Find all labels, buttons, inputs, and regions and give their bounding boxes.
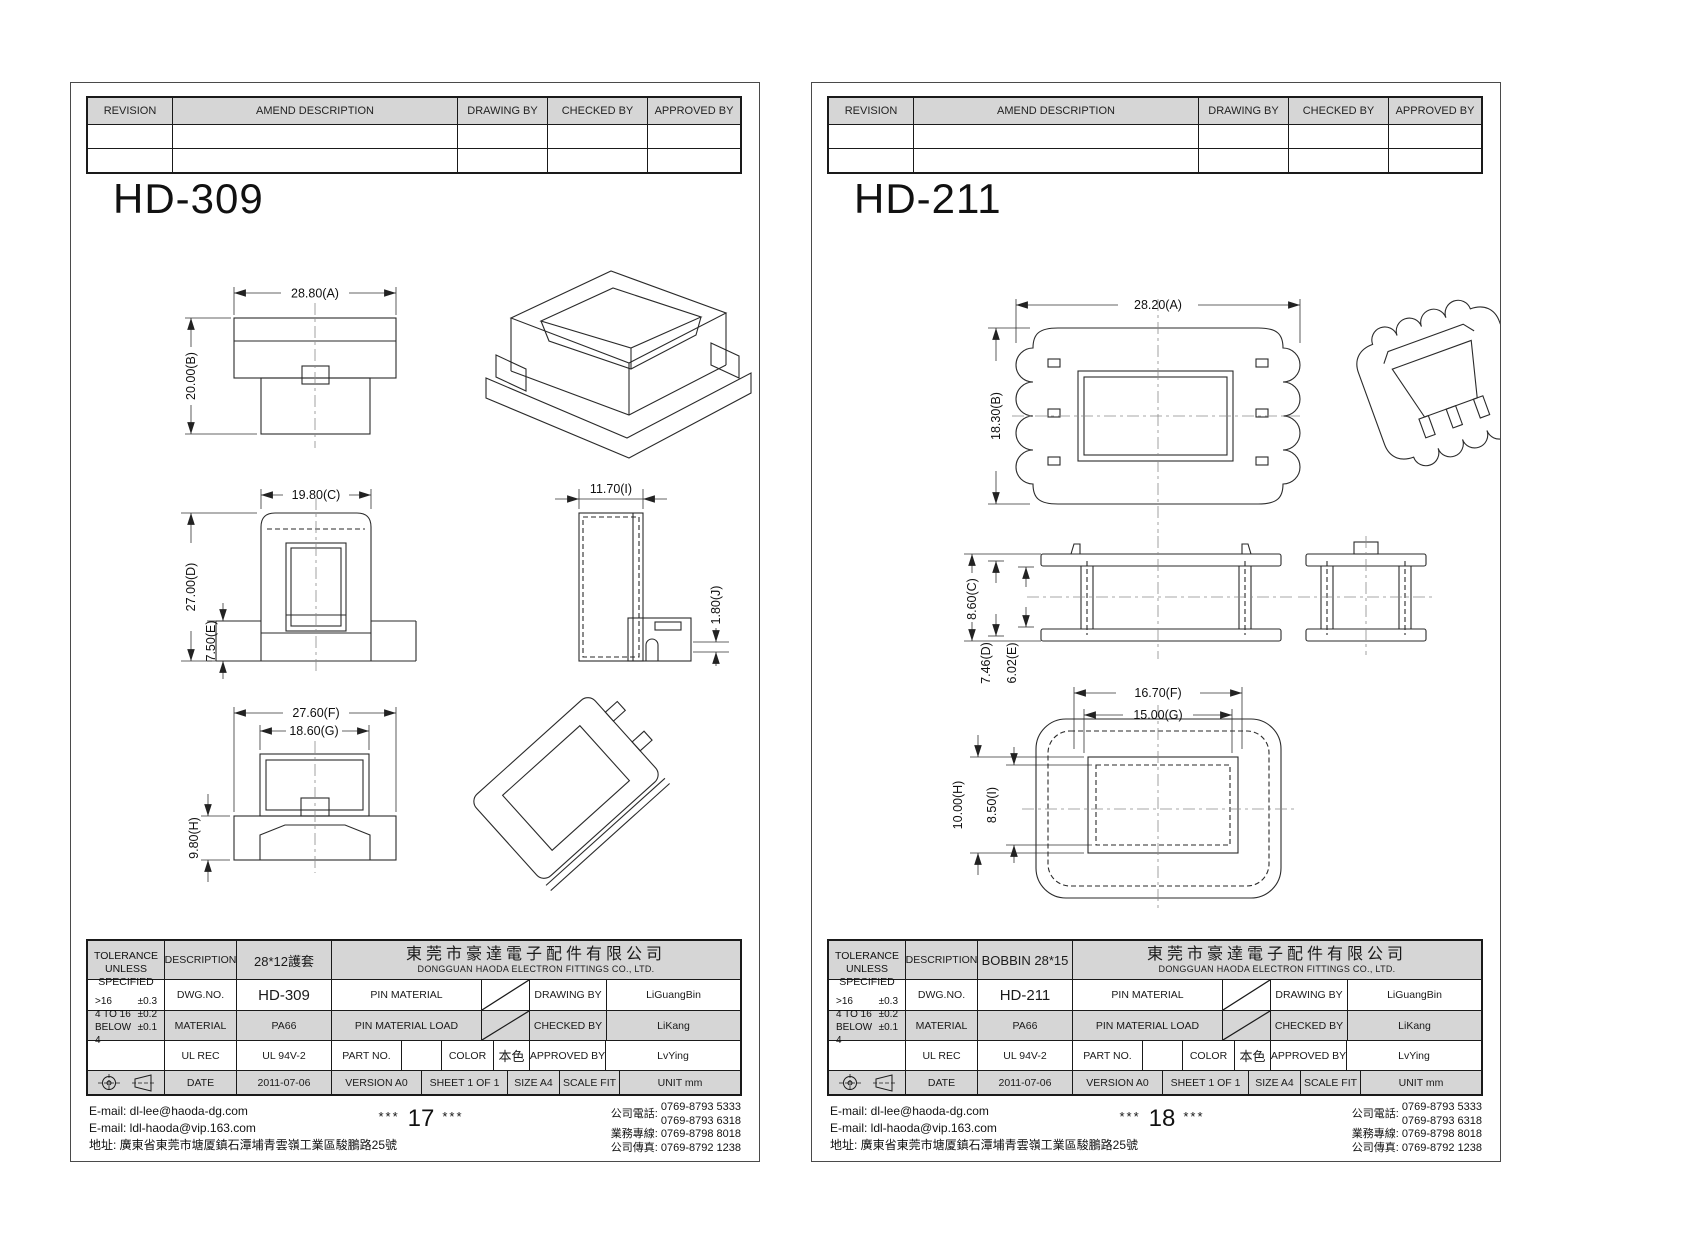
unit-cell: UNIT mm [1360, 1071, 1481, 1094]
page-number-value: 17 [400, 1105, 443, 1132]
date-label: DATE [905, 1071, 977, 1094]
size-cell: SIZE A4 [1248, 1071, 1300, 1094]
biz-line-label: 業務專線: [611, 1128, 658, 1142]
dwgno-value: HD-211 [977, 980, 1072, 1010]
pin-material-load-blank-cell [1222, 1011, 1270, 1040]
color-label: COLOR [1182, 1041, 1234, 1070]
phone-block: 公司電話: 0769-8793 5333 0769-8793 6318 業務專線… [611, 1101, 741, 1155]
spec-row-description: DESCRIPTION 28*12護套 東莞市豪達電子配件有限公司 DONGGU… [88, 941, 740, 979]
scale-cell: SCALE FIT [559, 1071, 619, 1094]
page-number-stars: *** [378, 1109, 399, 1124]
revision-header-cell: AMEND DESCRIPTION [913, 98, 1198, 124]
revision-header-cell: CHECKED BY [547, 98, 647, 124]
target-symbol-icon [836, 1073, 864, 1093]
date-value: 2011-07-06 [977, 1071, 1072, 1094]
revision-cell [457, 149, 547, 172]
dimension-label: 6.02(E) [1005, 643, 1019, 684]
company-cell: 東莞市豪達電子配件有限公司 DONGGUAN HAODA ELECTRON FI… [331, 941, 740, 979]
spec-row-dwgno: DWG.NO. HD-211 PIN MATERIAL DRAWING BY L… [829, 979, 1481, 1010]
dimension-label: 16.70(F) [1134, 686, 1181, 700]
revision-table: REVISION AMEND DESCRIPTION DRAWING BY CH… [86, 96, 742, 174]
pin-material-label: PIN MATERIAL [1072, 980, 1222, 1010]
page-number: ***17*** [301, 1105, 541, 1133]
revision-cell [457, 125, 547, 148]
spec-spacer [88, 1011, 164, 1040]
description-label: DESCRIPTION [905, 941, 977, 979]
revision-cell [1388, 149, 1481, 172]
revision-cell [172, 149, 457, 172]
revision-header-cell: REVISION [88, 98, 172, 124]
spec-spacer [88, 980, 164, 1010]
dwgno-value: HD-309 [236, 980, 331, 1010]
hd211-side-view: 8.60(C) 7.46(D) 6.02(E) [964, 536, 1295, 684]
hd211-bottom-view: 16.70(F) 15.00(G) 10.00(H) 8.50(I) [951, 686, 1294, 911]
revision-cell [647, 125, 740, 148]
unit-cell: UNIT mm [619, 1071, 740, 1094]
biz-line-number: 0769-8798 8018 [661, 1128, 741, 1142]
address-line: 地址: 廣東省東莞市塘厦鎮石潭埔青雲嶺工業區駿鵬路25號 [89, 1137, 397, 1154]
dwgno-label: DWG.NO. [164, 980, 236, 1010]
revision-cell [172, 125, 457, 148]
fax-number: 0769-8792 1238 [661, 1142, 741, 1156]
drawing-by-label: DRAWING BY [1270, 980, 1347, 1010]
page-number: ***18*** [1042, 1105, 1282, 1133]
scanned-catalog-spread: { "colors": {"grey_header": "#d6d6d6", "… [0, 0, 1701, 1240]
revision-cell [829, 125, 913, 148]
spec-spacer [88, 1041, 164, 1070]
date-label: DATE [164, 1071, 236, 1094]
sheet-cell: SHEET 1 OF 1 [421, 1071, 507, 1094]
approved-by-label: APPROVED BY [529, 1041, 605, 1070]
dimension-label: 27.60(F) [292, 706, 339, 720]
phone-number: 0769-8793 5333 [661, 1101, 741, 1115]
sheet-cell: SHEET 1 OF 1 [1162, 1071, 1248, 1094]
revision-cell [647, 149, 740, 172]
target-symbol-icon [95, 1073, 123, 1093]
projection-symbols-cell [829, 1071, 905, 1094]
hd211-top-view: 28.20(A) 18.30(B) [988, 298, 1304, 533]
revision-header-cell: APPROVED BY [647, 98, 740, 124]
color-value: 本色 [493, 1041, 529, 1070]
revision-empty-row [88, 148, 740, 172]
color-label: COLOR [441, 1041, 493, 1070]
page-number-stars: *** [1183, 1109, 1204, 1124]
cone-projection-icon [131, 1073, 157, 1093]
pin-material-blank-cell [1222, 980, 1270, 1010]
dimension-label: 10.00(H) [951, 781, 965, 830]
approved-by-value: LvYing [605, 1041, 740, 1070]
fax-number: 0769-8792 1238 [1402, 1142, 1482, 1156]
scale-cell: SCALE FIT [1300, 1071, 1360, 1094]
dimension-label: 7.46(D) [979, 642, 993, 684]
dimension-label: 7.50(E) [204, 621, 218, 662]
partno-value [401, 1041, 441, 1070]
description-label: DESCRIPTION [164, 941, 236, 979]
dimension-label: 8.60(C) [965, 578, 979, 620]
fax-label: 公司傳真: [611, 1142, 658, 1156]
dimension-label: 11.70(I) [590, 482, 632, 496]
hd309-mid-view: 19.80(C) 27.00(D) 7.50(E) [181, 488, 416, 679]
revision-header-cell: DRAWING BY [1198, 98, 1288, 124]
dwgno-label: DWG.NO. [905, 980, 977, 1010]
revision-cell [1288, 149, 1388, 172]
dimension-label: 27.00(D) [184, 563, 198, 612]
description-value: 28*12護套 [236, 941, 331, 979]
ulrec-label: UL REC [905, 1041, 977, 1070]
pin-material-label: PIN MATERIAL [331, 980, 481, 1010]
spec-row-date: DATE 2011-07-06 VERSION A0 SHEET 1 OF 1 … [88, 1070, 740, 1094]
spec-row-material: MATERIAL PA66 PIN MATERIAL LOAD CHECKED … [829, 1010, 1481, 1040]
version-cell: VERSION A0 [331, 1071, 421, 1094]
cone-projection-icon [872, 1073, 898, 1093]
dimension-label: 9.80(H) [187, 817, 201, 859]
page-number-stars: *** [442, 1109, 463, 1124]
dimension-label: 8.50(I) [985, 787, 999, 823]
revision-cell [88, 125, 172, 148]
dimension-label: 19.80(C) [292, 488, 341, 502]
revision-table: REVISION AMEND DESCRIPTION DRAWING BY CH… [827, 96, 1483, 174]
hd309-isometric-bottom-view [470, 683, 682, 891]
diagonal-slash-icon [482, 1011, 529, 1040]
spec-spacer [88, 941, 164, 979]
page-number-stars: *** [1119, 1109, 1140, 1124]
color-value: 本色 [1234, 1041, 1270, 1070]
dimension-label: 28.80(A) [291, 287, 339, 301]
revision-cell [1198, 125, 1288, 148]
spec-row-dwgno: DWG.NO. HD-309 PIN MATERIAL DRAWING BY L… [88, 979, 740, 1010]
address-line: 地址: 廣東省東莞市塘厦鎮石潭埔青雲嶺工業區駿鵬路25號 [830, 1137, 1138, 1154]
drawing-by-value: LiGuangBin [1347, 980, 1481, 1010]
material-value: PA66 [236, 1011, 331, 1040]
dimension-label: 1.80(J) [709, 586, 723, 625]
page-title: HD-309 [113, 175, 264, 223]
revision-cell [547, 149, 647, 172]
size-cell: SIZE A4 [507, 1071, 559, 1094]
ulrec-value: UL 94V-2 [236, 1041, 331, 1070]
pin-material-load-label: PIN MATERIAL LOAD [331, 1011, 481, 1040]
revision-cell [913, 149, 1198, 172]
ulrec-value: UL 94V-2 [977, 1041, 1072, 1070]
revision-header-cell: REVISION [829, 98, 913, 124]
title-block-table: DESCRIPTION 28*12護套 東莞市豪達電子配件有限公司 DONGGU… [86, 939, 742, 1096]
checked-by-value: LiKang [606, 1011, 740, 1040]
revision-cell [1288, 125, 1388, 148]
revision-empty-row [88, 124, 740, 148]
revision-cell [88, 149, 172, 172]
checked-by-label: CHECKED BY [1270, 1011, 1347, 1040]
hd309-drawing-area: 28.80(A) 20.00(B) [71, 243, 759, 933]
spec-row-material: MATERIAL PA66 PIN MATERIAL LOAD CHECKED … [88, 1010, 740, 1040]
diagonal-slash-icon [1223, 980, 1270, 1010]
dimension-label: 28.20(A) [1134, 298, 1182, 312]
drawing-by-value: LiGuangBin [606, 980, 740, 1010]
hd309-bottom-view: 27.60(F) 18.60(G) 9.80(H) [187, 706, 396, 882]
date-value: 2011-07-06 [236, 1071, 331, 1094]
dimension-label: 15.00(G) [1133, 708, 1182, 722]
revision-cell [913, 125, 1198, 148]
revision-header-cell: DRAWING BY [457, 98, 547, 124]
spec-row-date: DATE 2011-07-06 VERSION A0 SHEET 1 OF 1 … [829, 1070, 1481, 1094]
title-block-table: DESCRIPTION BOBBIN 28*15 東莞市豪達電子配件有限公司 D… [827, 939, 1483, 1096]
hd309-front-view: 28.80(A) 20.00(B) [184, 287, 396, 449]
drawing-sheet-hd211: REVISION AMEND DESCRIPTION DRAWING BY CH… [811, 82, 1501, 1162]
phone-number: 0769-8793 6318 [1402, 1115, 1482, 1129]
partno-label: PART NO. [331, 1041, 401, 1070]
spec-spacer [829, 1011, 905, 1040]
partno-value [1142, 1041, 1182, 1070]
partno-label: PART NO. [1072, 1041, 1142, 1070]
dimension-label: 18.30(B) [989, 392, 1003, 440]
company-name-cn: 東莞市豪達電子配件有限公司 [1147, 946, 1407, 964]
version-cell: VERSION A0 [1072, 1071, 1162, 1094]
phone-label: 公司電話: [611, 1108, 658, 1122]
drawing-by-label: DRAWING BY [529, 980, 606, 1010]
revision-cell [547, 125, 647, 148]
phone-label: 公司電話: [1352, 1108, 1399, 1122]
revision-empty-row [829, 124, 1481, 148]
dimension-label: 20.00(B) [184, 352, 198, 400]
spec-spacer [829, 980, 905, 1010]
checked-by-value: LiKang [1347, 1011, 1481, 1040]
revision-header-row: REVISION AMEND DESCRIPTION DRAWING BY CH… [829, 98, 1481, 124]
drawing-sheet-hd309: REVISION AMEND DESCRIPTION DRAWING BY CH… [70, 82, 760, 1162]
projection-symbols-cell [88, 1071, 164, 1094]
hd211-drawing-area: 28.20(A) 18.30(B) [812, 243, 1500, 933]
material-value: PA66 [977, 1011, 1072, 1040]
spec-spacer [829, 1041, 905, 1070]
revision-header-cell: CHECKED BY [1288, 98, 1388, 124]
revision-cell [1388, 125, 1481, 148]
hd211-isometric-view [1347, 289, 1500, 477]
diagonal-slash-icon [482, 980, 529, 1010]
spec-row-ulrec: UL REC UL 94V-2 PART NO. COLOR 本色 APPROV… [829, 1040, 1481, 1070]
company-cell: 東莞市豪達電子配件有限公司 DONGGUAN HAODA ELECTRON FI… [1072, 941, 1481, 979]
company-name-en: DONGGUAN HAODA ELECTRON FITTINGS CO., LT… [418, 964, 655, 974]
hd309-side-view: 11.70(I) 1.80(J) [555, 482, 729, 666]
diagonal-slash-icon [1223, 1011, 1270, 1040]
approved-by-value: LvYing [1346, 1041, 1481, 1070]
pin-material-load-blank-cell [481, 1011, 529, 1040]
pin-material-blank-cell [481, 980, 529, 1010]
page-number-value: 18 [1141, 1105, 1184, 1132]
spec-row-description: DESCRIPTION BOBBIN 28*15 東莞市豪達電子配件有限公司 D… [829, 941, 1481, 979]
material-label: MATERIAL [164, 1011, 236, 1040]
spec-spacer [829, 941, 905, 979]
page-title: HD-211 [854, 175, 1002, 223]
company-name-cn: 東莞市豪達電子配件有限公司 [406, 946, 666, 964]
revision-header-row: REVISION AMEND DESCRIPTION DRAWING BY CH… [88, 98, 740, 124]
revision-cell [1198, 149, 1288, 172]
description-value: BOBBIN 28*15 [977, 941, 1072, 979]
biz-line-label: 業務專線: [1352, 1128, 1399, 1142]
dimension-label: 18.60(G) [289, 724, 338, 738]
company-name-en: DONGGUAN HAODA ELECTRON FITTINGS CO., LT… [1159, 964, 1396, 974]
ulrec-label: UL REC [164, 1041, 236, 1070]
spec-row-ulrec: UL REC UL 94V-2 PART NO. COLOR 本色 APPROV… [88, 1040, 740, 1070]
revision-header-cell: APPROVED BY [1388, 98, 1481, 124]
phone-number: 0769-8793 6318 [661, 1115, 741, 1129]
hd211-side-view-2 [1298, 536, 1434, 655]
approved-by-label: APPROVED BY [1270, 1041, 1346, 1070]
hd309-isometric-view [486, 271, 751, 458]
phone-number: 0769-8793 5333 [1402, 1101, 1482, 1115]
checked-by-label: CHECKED BY [529, 1011, 606, 1040]
revision-empty-row [829, 148, 1481, 172]
fax-label: 公司傳真: [1352, 1142, 1399, 1156]
biz-line-number: 0769-8798 8018 [1402, 1128, 1482, 1142]
revision-header-cell: AMEND DESCRIPTION [172, 98, 457, 124]
material-label: MATERIAL [905, 1011, 977, 1040]
revision-cell [829, 149, 913, 172]
phone-block: 公司電話: 0769-8793 5333 0769-8793 6318 業務專線… [1352, 1101, 1482, 1155]
pin-material-load-label: PIN MATERIAL LOAD [1072, 1011, 1222, 1040]
